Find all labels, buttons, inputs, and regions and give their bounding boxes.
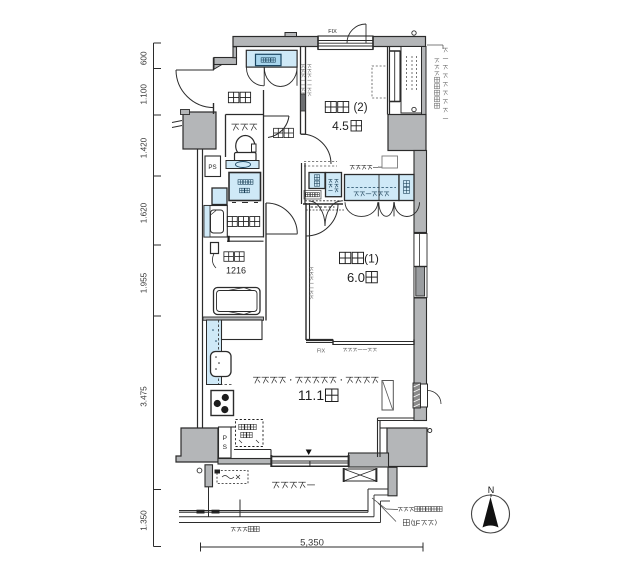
svg-text:S: S [223, 444, 228, 451]
svg-text:1.955: 1.955 [140, 272, 149, 293]
svg-text:1.620: 1.620 [140, 202, 149, 223]
svg-text:5,350: 5,350 [300, 538, 324, 549]
svg-text:11.1: 11.1 [298, 387, 324, 403]
svg-text:1.100: 1.100 [140, 84, 149, 105]
svg-text:P: P [223, 435, 227, 442]
svg-text:6.0: 6.0 [347, 270, 365, 285]
svg-text:1216: 1216 [226, 266, 246, 276]
svg-text:(2): (2) [353, 102, 367, 114]
svg-text:1.350: 1.350 [140, 510, 149, 531]
svg-text:600: 600 [140, 51, 149, 65]
svg-text:FIX: FIX [317, 349, 326, 355]
svg-text:3.475: 3.475 [140, 386, 149, 407]
svg-text:N: N [488, 485, 495, 495]
svg-text:PS: PS [208, 164, 216, 171]
svg-text:1.420: 1.420 [140, 137, 149, 158]
svg-text:FIX: FIX [328, 29, 337, 35]
svg-text:F: F [416, 518, 421, 527]
svg-text:(1): (1) [364, 251, 379, 265]
svg-text:4.5: 4.5 [332, 119, 349, 133]
